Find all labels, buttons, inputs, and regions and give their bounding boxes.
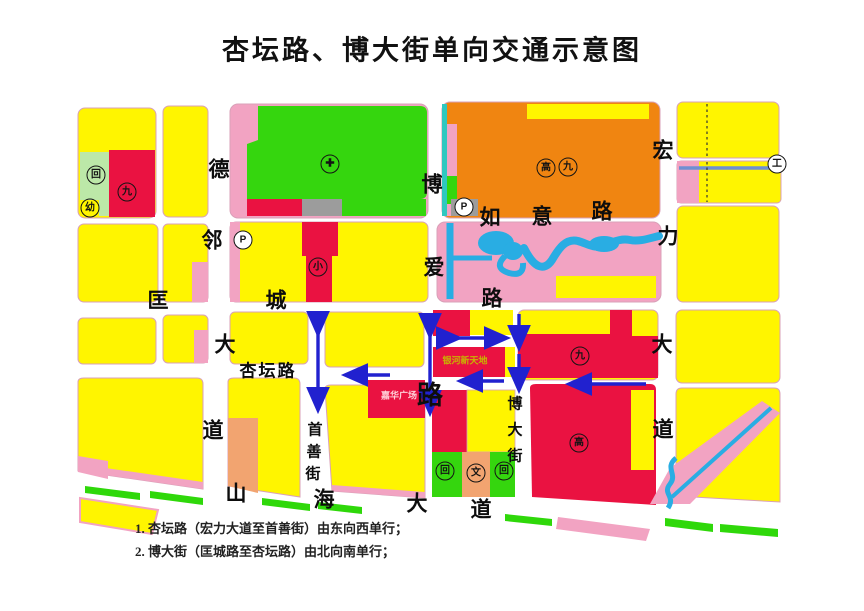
ruyi-park-block — [437, 222, 661, 302]
block-s-salmon — [228, 378, 300, 497]
facility-icon-gao-ne: 高 — [537, 159, 556, 178]
block-sw-large — [78, 378, 203, 489]
facility-icon-hui-s1: 回 — [436, 462, 455, 481]
block-w2-row3 — [163, 315, 208, 363]
facility-icon-gao-se: 高 — [570, 434, 589, 453]
facility-icon-you-nw: 幼 — [81, 199, 100, 218]
block-north-2 — [163, 106, 208, 217]
road-label-boda-1: 博 — [507, 398, 522, 413]
block-northeast-stream — [677, 161, 781, 203]
road-label-boai-3: 路 — [417, 383, 443, 409]
road-label-shanhai-4: 道 — [471, 500, 492, 521]
road-label-boai-1: 博 — [422, 175, 443, 196]
facility-icon-wen-s: 文 — [467, 464, 486, 483]
block-w-row2 — [78, 224, 158, 302]
block-boai-top-yellow — [470, 310, 513, 335]
road-label-shoushan-1: 首 — [307, 424, 322, 439]
footnote-1: 1. 杏坛路（宏力大道至首善街）由东向西单行； — [135, 518, 408, 537]
parking-icon-w: P — [234, 231, 253, 250]
facility-icon-hui-s2: 回 — [495, 462, 514, 481]
facility-icon-jiu-ne: 九 — [559, 158, 578, 177]
road-label-xingtan: 杏坛路 — [240, 363, 297, 380]
traffic-map-canvas: 杏坛路、博大街单向交通示意图 德 邻 大 道 匡 城 路 如 意 路 博 爱 路… — [0, 0, 864, 611]
place-label-jiahua: 嘉华广场 — [381, 392, 417, 401]
map-title: 杏坛路、博大街单向交通示意图 — [222, 29, 642, 68]
road-label-kuangcheng-1: 匡 — [148, 291, 169, 312]
block-w-row3 — [78, 318, 156, 364]
block-east-col-4 — [650, 388, 780, 508]
road-label-shoushan-2: 善 — [306, 446, 321, 461]
road-label-shanhai-2: 海 — [314, 490, 335, 511]
map-shapes — [0, 0, 864, 611]
block-mid-row2-school — [230, 222, 428, 302]
road-label-delin-1: 德 — [209, 160, 230, 181]
facility-icon-jiu-e: 九 — [571, 347, 590, 366]
facility-icon-xiao: 小 — [309, 258, 328, 277]
road-label-hongli-1: 宏 — [653, 141, 674, 162]
road-label-delin-2: 邻 — [202, 231, 223, 252]
road-label-boda-2: 大 — [507, 424, 522, 439]
facility-icon-gong-ne: 工 — [768, 155, 787, 174]
block-east-col-2 — [677, 206, 779, 302]
road-label-ruyi-2: 意 — [532, 207, 553, 228]
road-label-boai-2: 爱 — [424, 258, 445, 279]
parking-icon-ne: P — [455, 198, 474, 217]
road-label-boda-3: 街 — [507, 450, 522, 465]
road-label-shanhai-3: 大 — [407, 494, 428, 515]
hospital-cross-icon: ✚ — [321, 155, 340, 174]
yinhe-block-yellow-sliver — [505, 347, 515, 377]
block-northeast-top — [677, 102, 779, 158]
block-mid1-row3 — [230, 312, 308, 364]
facility-icon-jiu-nw: 九 — [118, 183, 137, 202]
facility-icon-hui-nw: 回 — [87, 166, 106, 185]
road-label-ruyi-1: 如 — [480, 208, 501, 229]
road-label-shanhai-1: 山 — [226, 484, 247, 505]
block-se-red — [530, 384, 656, 505]
road-label-shoushan-3: 街 — [305, 468, 320, 483]
road-label-hongli-3: 大 — [652, 335, 673, 356]
road-label-hongli-2: 力 — [658, 227, 679, 248]
school-nine-red-block — [518, 310, 658, 380]
road-label-ruyi-3: 路 — [592, 202, 613, 223]
block-boai-top-red — [433, 310, 470, 336]
place-label-yinhe: 银河新天地 — [442, 357, 487, 366]
block-mid2-row3 — [325, 312, 424, 367]
road-label-kuangcheng-3: 路 — [482, 289, 503, 310]
block-east-col-3 — [676, 310, 780, 383]
road-label-kuangcheng-2: 城 — [266, 291, 287, 312]
footnote-2: 2. 博大街（匡城路至杏坛路）由北向南单行； — [135, 541, 395, 560]
road-label-hongli-4: 道 — [653, 420, 674, 441]
road-label-delin-3: 大 — [215, 335, 236, 356]
road-label-delin-4: 道 — [203, 421, 224, 442]
